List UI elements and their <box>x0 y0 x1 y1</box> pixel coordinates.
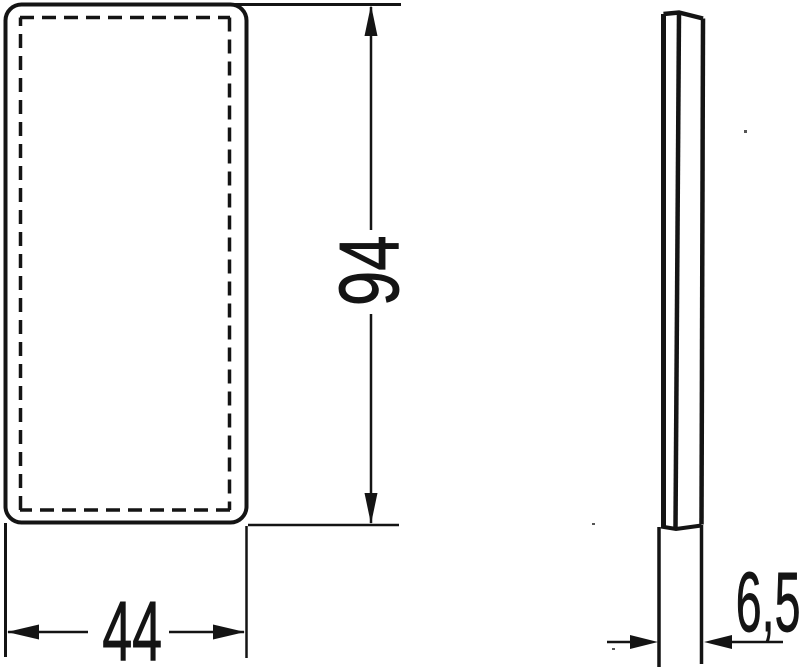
svg-text:6,5: 6,5 <box>736 557 800 650</box>
svg-text:44: 44 <box>102 584 162 672</box>
svg-text:94: 94 <box>322 235 416 306</box>
